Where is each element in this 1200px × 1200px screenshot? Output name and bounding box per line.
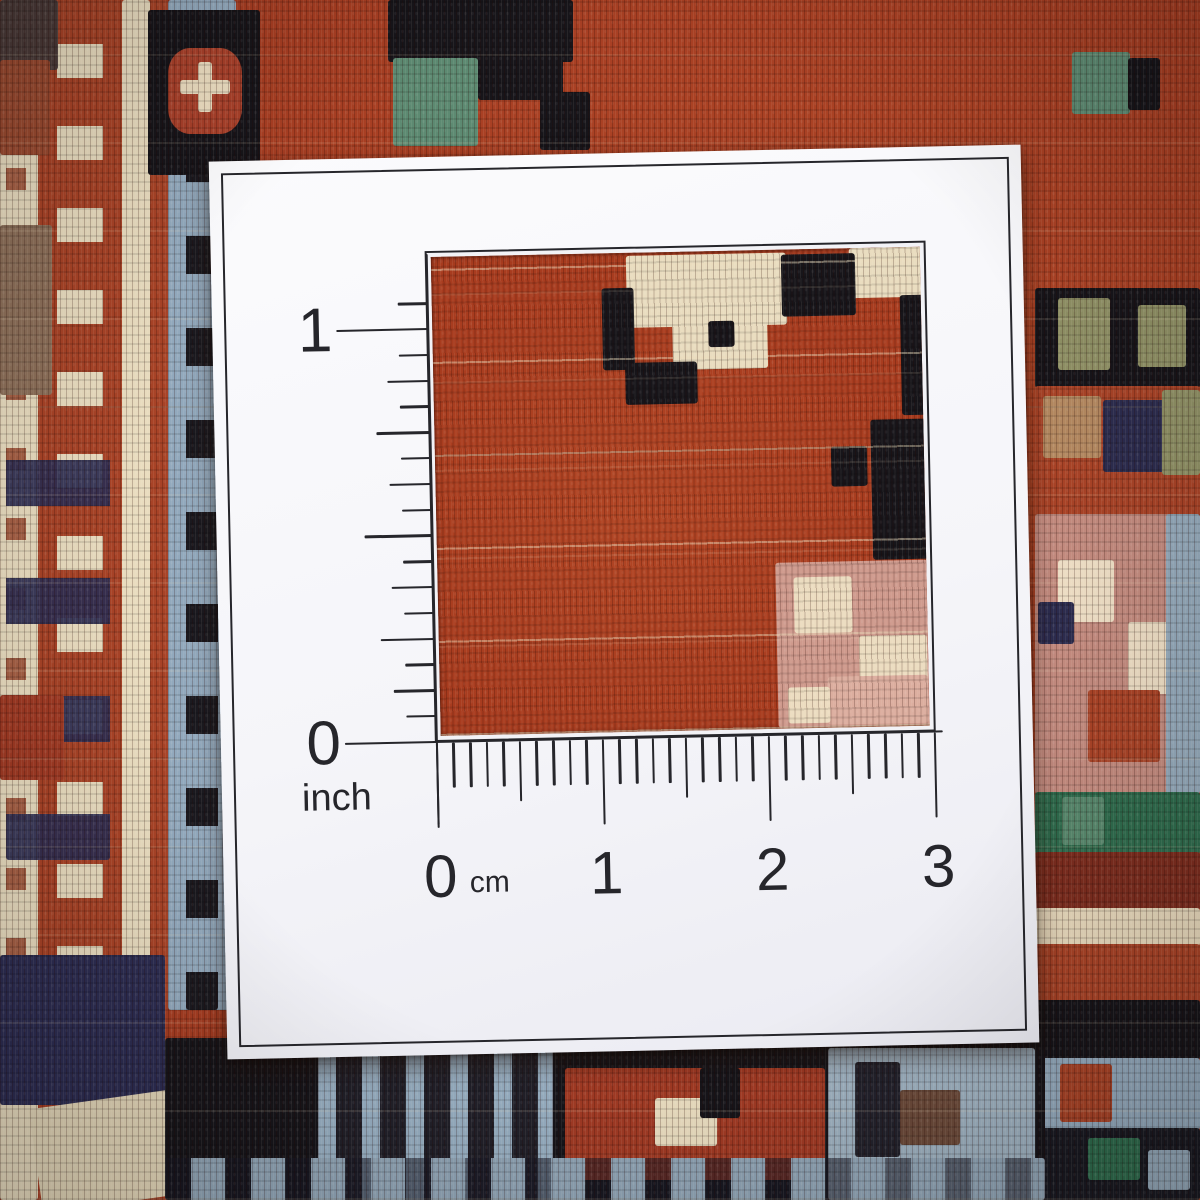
measurement-card: 1 0 inch 0 cm 1 2 3 [209,145,1040,1060]
carpet-left-brown-blob [0,225,52,395]
carpet-right-blue-red-chip [1060,1064,1112,1122]
carpet-right-cream-row [1035,908,1200,946]
carpet-topleft-red [0,60,50,155]
carpet-bottom-dark-chip [855,1062,900,1157]
ruler-tick [452,743,455,788]
ruler-tick [917,733,920,778]
carpet-bottomleft-navy [0,955,165,1105]
carpet-right-rose-navy [1038,602,1074,644]
ruler-tick [701,737,704,782]
carpet-top-black3 [540,92,590,150]
carpet-bottom-strip [165,1158,1045,1200]
carpet-right-green-row [1035,792,1200,854]
ruler-tick [585,740,588,785]
ruler-tick [900,733,903,778]
ruler-tick [668,738,671,783]
ruler-tick [768,736,772,821]
ruler-tick [884,734,887,779]
ruler-tick [851,734,855,794]
cm-unit-label: cm [470,867,511,898]
carpet-topright-black [1128,58,1160,110]
inch-label-1: 1 [252,300,333,364]
carpet-top-black-ornament [388,0,573,62]
ruler-tick [934,732,938,817]
carpet-right-red-row [1035,944,1200,1002]
carpet-right-blue-edge [1166,514,1200,794]
ruler-tick [602,739,606,824]
carpet-top-teal [393,58,478,146]
cm-label-3: 3 [908,836,969,897]
ruler-tick [685,738,689,798]
cm-label-0: 0 [410,846,471,907]
carpet-left-navy-chevrons [6,430,110,860]
ruler-tick [502,742,505,787]
carpet-topright-teal [1072,52,1130,114]
carpet-rosette-cross-v [198,62,212,112]
inch-label-0: 0 [260,713,341,777]
carpet-left-cream-stripe [122,0,150,1010]
carpet-right-teal-chip [1062,797,1104,845]
ruler-tick [436,743,440,828]
inch-unit-label: inch [302,778,372,817]
ruler-tick [817,735,820,780]
carpet-right-olive1 [1058,298,1110,370]
ruler-tick [867,734,870,779]
carpet-right-rose-red [1088,690,1160,762]
carpet-right-olive3 [1162,390,1200,475]
carpet-right-tan [1043,396,1101,458]
ruler-tick [635,739,638,784]
ruler-tick [485,742,488,787]
carpet-left-red-block [0,695,64,780]
ruler-tick [535,741,538,786]
ruler-tick [469,742,472,787]
ruler-tick [801,735,804,780]
carpet-bottom-black-notch [700,1068,740,1118]
carpet-bottom-brown-chip [900,1090,960,1145]
carpet-right-green-chip [1088,1138,1140,1180]
ruler-tick [734,737,737,782]
carpet-right-maroon-row [1035,852,1200,910]
ruler-tick [751,736,754,781]
carpet-right-blue-chip [1148,1150,1190,1190]
ruler-tick [618,739,621,784]
carpet-right-navy [1103,400,1165,472]
cm-ruler-ticks [209,145,1040,1060]
ruler-tick [519,741,523,801]
cm-label-1: 1 [576,843,637,904]
carpet-right-olive2 [1138,305,1186,367]
ruler-tick [651,738,654,783]
ruler-tick [784,736,787,781]
carpet-right-black-row2 [1035,1000,1200,1060]
cm-label-2: 2 [742,839,803,900]
ruler-tick [718,737,721,782]
rug-photo: 1 0 inch 0 cm 1 2 3 [0,0,1200,1200]
ruler-tick [834,735,837,780]
ruler-tick [552,740,555,785]
ruler-tick [568,740,571,785]
